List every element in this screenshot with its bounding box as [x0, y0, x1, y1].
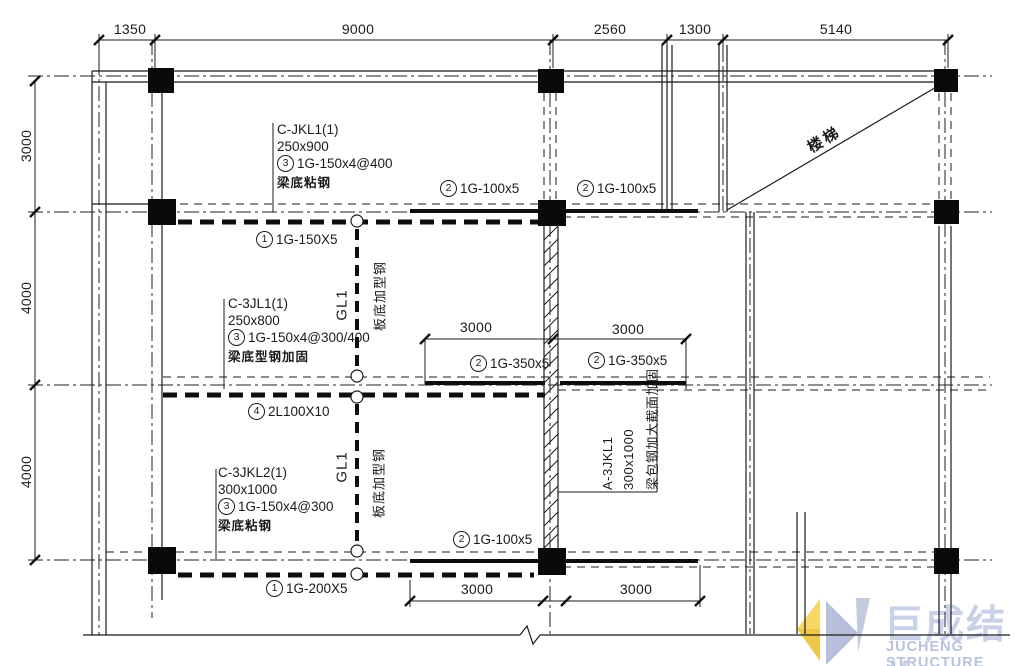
- logo-company-name-en: JUCHENG STRUCTURE: [886, 639, 1016, 666]
- beam-label-c3jkl2: C-3JKL2(1) 300x1000 31G-150x4@300 梁底粘钢: [218, 464, 334, 535]
- circled-number-icon: 1: [266, 580, 283, 597]
- dim-top-2: 9000: [342, 21, 374, 37]
- drawing-canvas: 巨成结构 JUCHENG STRUCTURE: [0, 0, 1016, 666]
- dim-top-3: 2560: [594, 21, 626, 37]
- tag-1g150x5: 11G-150X5: [256, 231, 338, 248]
- dim-top-1: 1350: [114, 21, 146, 37]
- logo-blue-play-triangle: [826, 601, 858, 665]
- slab-steel-label-lower: 板底加型钢: [369, 448, 388, 518]
- circled-number-icon: 2: [577, 180, 594, 197]
- circled-number-icon: 3: [277, 155, 294, 172]
- tag-1g350x5-left: 21G-350x5: [470, 355, 549, 372]
- tag-1g100x5-top-right: 21G-100x5: [577, 180, 656, 197]
- slab-steel-label-upper: 板底加型钢: [370, 261, 389, 331]
- dim-mid-bottom-1: 3000: [461, 581, 493, 597]
- gl1-label-lower: GL1: [334, 451, 351, 482]
- tag-1g200x5: 11G-200X5: [266, 580, 348, 597]
- dim-left-3: 4000: [18, 456, 34, 488]
- dim-mid-bottom-2: 3000: [620, 581, 652, 597]
- circled-number-icon: 1: [256, 231, 273, 248]
- logo-mark: [0, 0, 1016, 666]
- circled-number-icon: 2: [470, 355, 487, 372]
- circled-number-icon: 3: [228, 329, 245, 346]
- circled-number-icon: 2: [440, 180, 457, 197]
- beam-label-cjkl1: C-JKL1(1) 250x900 31G-150x4@400 梁底粘钢: [277, 121, 393, 192]
- gl1-label-upper: GL1: [334, 289, 351, 320]
- dim-left-1: 3000: [18, 130, 34, 162]
- logo-yellow-triangle-lower: [797, 629, 820, 661]
- dim-top-4: 1300: [679, 21, 711, 37]
- tag-1g350x5-right: 21G-350x5: [588, 352, 667, 369]
- logo-blue-spike: [856, 598, 870, 652]
- dim-mid-top-1: 3000: [460, 319, 492, 335]
- dim-mid-top-2: 3000: [612, 321, 644, 337]
- dim-top-5: 5140: [820, 21, 852, 37]
- circled-number-icon: 3: [218, 498, 235, 515]
- logo-yellow-triangle: [797, 599, 820, 629]
- dim-left-2: 4000: [18, 282, 34, 314]
- circled-number-icon: 4: [248, 403, 265, 420]
- tag-1g100x5-bottom: 21G-100x5: [453, 531, 532, 548]
- tag-1g100x5-top-left: 21G-100x5: [440, 180, 519, 197]
- circled-number-icon: 2: [453, 531, 470, 548]
- tag-2l100x10: 42L100X10: [248, 403, 330, 420]
- circled-number-icon: 2: [588, 352, 605, 369]
